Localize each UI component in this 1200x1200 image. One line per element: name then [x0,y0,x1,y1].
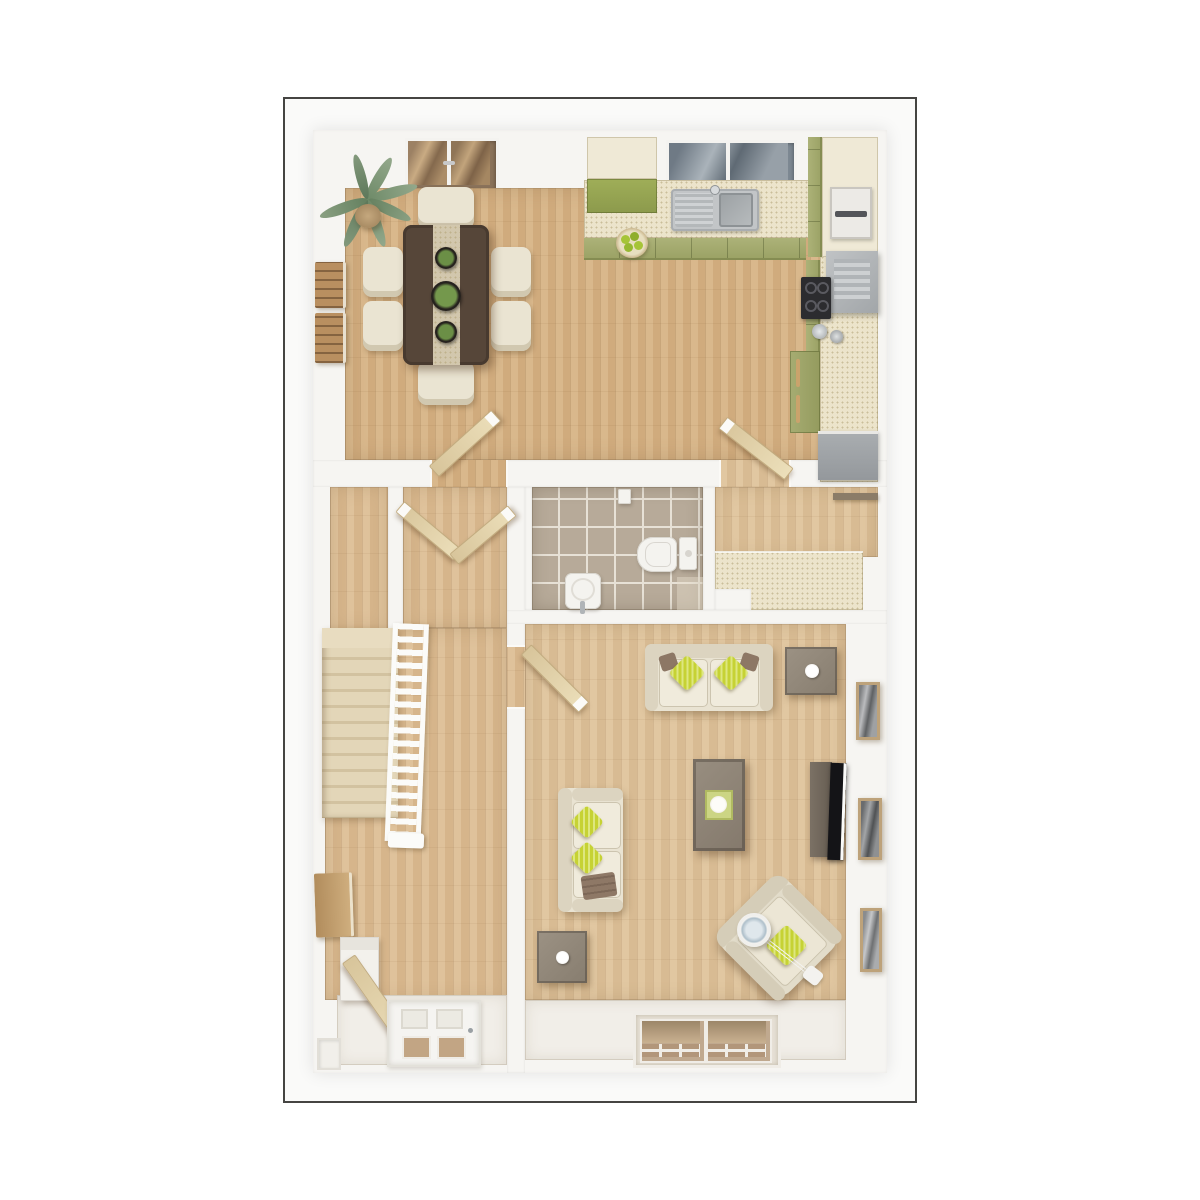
kitchen-tall-unit-front [587,179,657,213]
apple-icon [624,243,633,252]
bathroom-left-wall [525,487,532,610]
lower-green-cabinet [790,351,820,433]
burner-icon [817,282,829,294]
centerpiece-plant [435,321,457,343]
potted-palm [325,144,417,232]
burner-icon [805,300,817,312]
french-door-handles-icon [443,161,455,165]
three-seat-sofa [558,788,623,912]
wall-frame [858,798,882,860]
sofa-backrest [558,788,572,912]
window [706,1019,772,1063]
store-wall-stub [715,589,751,610]
burner-icon [805,282,817,294]
sink-drainer [675,193,713,227]
stairwell-corridor-floor [330,487,388,630]
entrance-niche [317,1038,341,1070]
shower-light-patch [677,577,703,610]
wall-art-panel [315,262,346,308]
table-tray [705,790,733,820]
gray-appliance [818,431,878,480]
cabinet-handle-icon [796,395,800,423]
stair-landing [322,628,398,648]
front-door-glass [402,1036,431,1059]
pot-icon [830,330,843,343]
centerpiece-plant [435,247,457,269]
upper-right-cabinet-edge [808,137,822,257]
bath-store-bottom-wall [507,610,887,624]
cabinet-handle-icon [796,359,800,387]
kitchen-window-mullion [726,143,730,183]
kettle-icon [812,324,827,339]
palm-leaf-icon [350,153,372,200]
kitchen-hall-wall [313,460,887,487]
extractor-vent [834,259,870,299]
extractor-hood [826,251,878,313]
arc-floor-lamp-shade [737,913,771,947]
front-door-panel [401,1009,428,1029]
plant-pot [355,204,381,228]
sofa-armrest [645,644,658,711]
front-door-panel [436,1009,463,1029]
sofa-armrest [760,644,773,711]
burner-icon [817,300,829,312]
dining-chair [491,247,531,297]
apple-icon [634,241,643,250]
toilet-bowl [637,537,677,572]
kitchen-tall-unit [587,137,657,179]
living-window-bay [633,1012,781,1068]
dining-chair [418,361,474,405]
centerpiece-plant [431,281,461,311]
wall-art-panel [315,313,346,363]
wall-frame [860,908,882,972]
tv-screen [827,763,846,860]
wall-shelf [314,872,354,937]
microwave [830,187,872,239]
window-glass [642,1021,700,1043]
bowl-icon [710,796,727,813]
flush-button-icon [685,550,692,557]
sofa-armrest [572,899,623,912]
window-grid [708,1044,766,1057]
dining-chair [363,247,403,297]
front-door [387,1000,481,1067]
wash-basin [565,573,601,609]
front-door-glass [437,1036,466,1059]
hall-living-wall [507,487,525,1073]
candle-icon [805,664,819,678]
bathroom-right-wall [703,487,715,610]
side-table [537,931,587,983]
dining-chair [418,187,474,229]
floor-plan [283,97,917,1103]
french-door-glass-right [451,141,490,185]
window-glass [708,1021,766,1043]
dining-chair [363,301,403,351]
toilet-lid-line [645,542,671,567]
vase-icon [556,951,569,964]
toilet-cistern [679,537,697,570]
sofa-blanket [580,872,617,900]
sofa-armrest [572,788,623,801]
store-shelf-edge [833,493,878,500]
toilet-roll-holder-icon [618,489,631,504]
basin-bowl [571,578,595,601]
window-grid [642,1044,700,1057]
fruit-bowl [616,228,648,258]
dining-table [403,225,489,365]
side-table [785,647,837,695]
sink-basin [719,193,753,227]
dining-chair [491,301,531,351]
two-seat-sofa [645,644,773,711]
microwave-door-slot [835,211,867,217]
wall-frame [856,682,880,740]
kitchen-sink [671,189,759,231]
french-doors [405,138,499,194]
hob [801,277,831,319]
window [640,1019,706,1063]
coffee-table [693,759,745,851]
sink-faucet-icon [711,186,719,194]
basin-tap-icon [580,601,585,614]
apple-icon [630,232,639,241]
stair-newel-post [388,832,425,848]
door-handle-icon [468,1028,473,1033]
